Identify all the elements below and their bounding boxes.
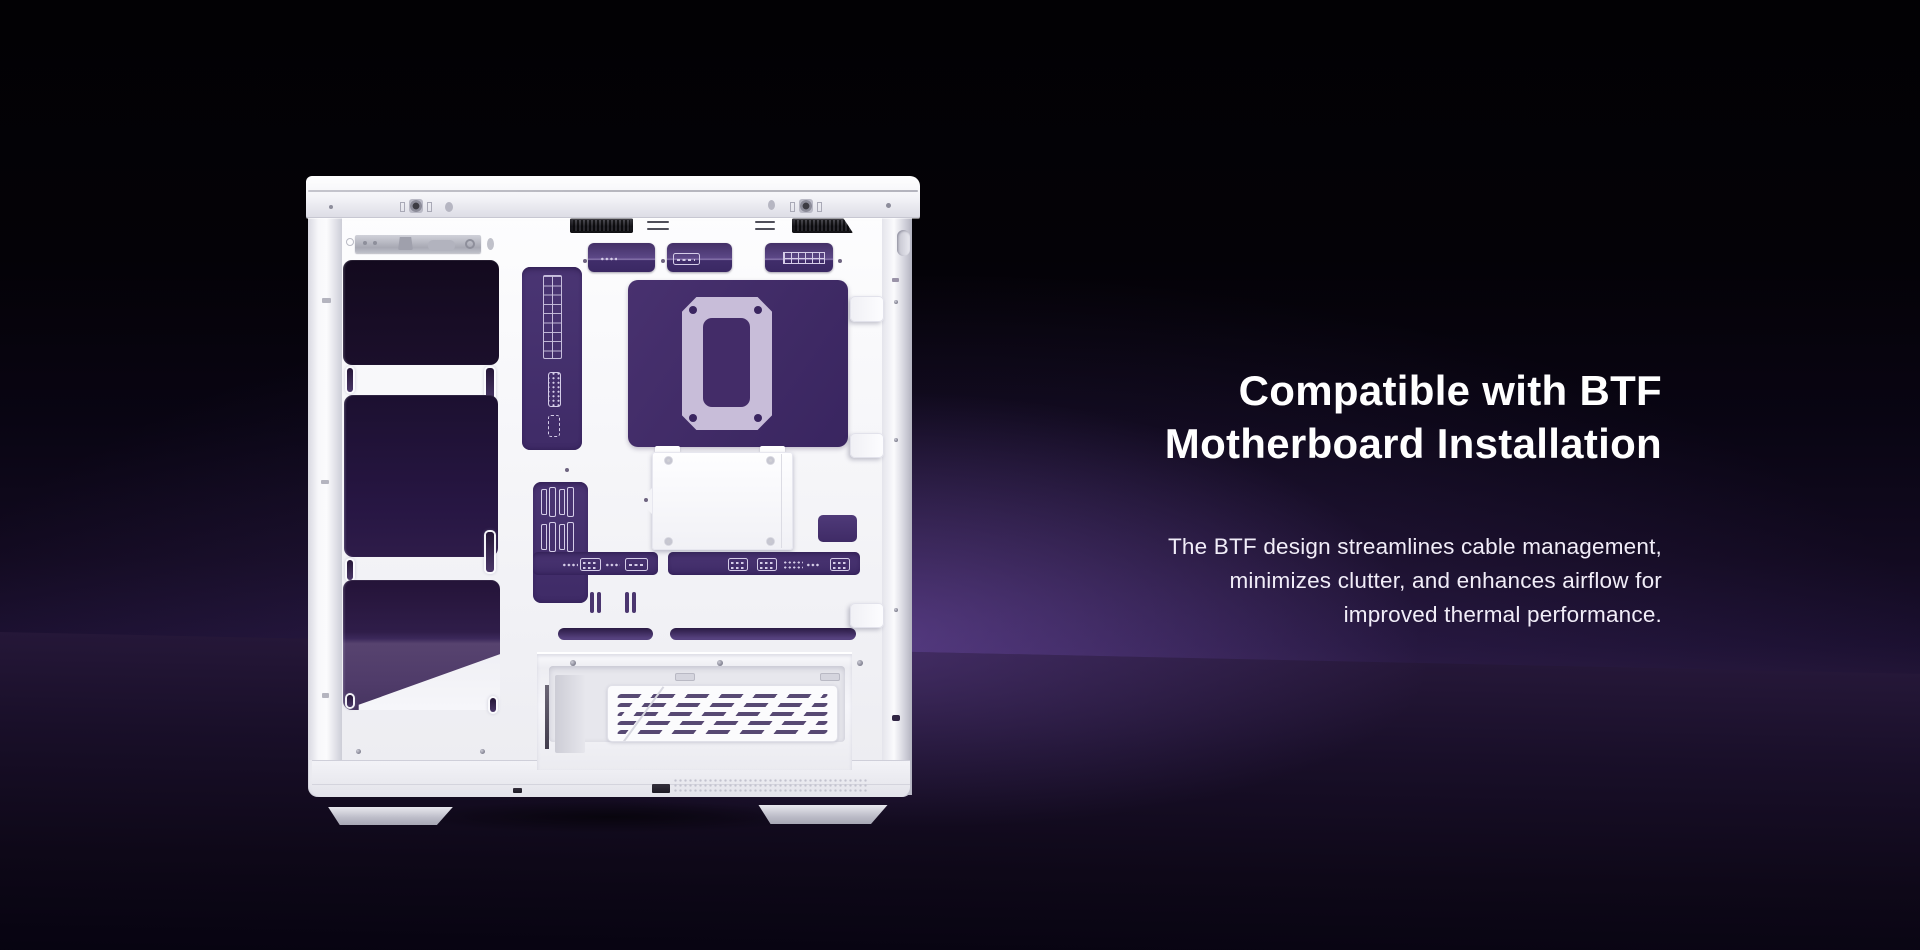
routing-mark [597, 592, 601, 613]
fan-cutout-bottom [343, 580, 500, 710]
body-line-1: The BTF design streamlines cable managem… [942, 530, 1662, 564]
lid-grommet [445, 202, 453, 212]
background-floor-gradient [0, 632, 1920, 950]
strap-slot [347, 368, 353, 392]
motherboard-tray-cutout [628, 280, 848, 447]
pin-dots-icon [600, 257, 617, 261]
connector-box-icon [757, 558, 777, 571]
cable-block-fan-header [588, 243, 655, 272]
fan-bracket-screw-ring [346, 238, 354, 246]
shroud-screw [570, 660, 576, 666]
lid-seam-line [308, 190, 918, 192]
heading-line-2: Motherboard Installation [942, 417, 1662, 470]
fan-cutout-middle [344, 395, 498, 557]
backplate-screw-hole [689, 414, 697, 422]
top-vent-lines [755, 221, 775, 230]
bezel-dash [322, 693, 329, 698]
shroud-side-panel [555, 675, 585, 753]
rear-dash [892, 278, 899, 282]
fan-cutout-top [343, 260, 499, 365]
plate-screw [766, 456, 775, 465]
routing-mark [632, 592, 636, 613]
shroud-screw [857, 660, 863, 666]
shroud-cable-slot-left [558, 628, 653, 640]
thumbscrew-knob [799, 199, 813, 213]
case-foot-right [748, 805, 898, 824]
wall-screw [894, 438, 898, 442]
strap-slot [347, 695, 353, 707]
standoff-dot [583, 259, 587, 263]
pin-dots-icon [562, 563, 578, 567]
strap-slot [490, 698, 496, 712]
section-body: The BTF design streamlines cable managem… [942, 530, 1662, 632]
side-panel-latch [850, 433, 884, 458]
psu-clip [820, 673, 840, 681]
grommet-oval [487, 238, 494, 250]
radiator-mount-bracket [355, 235, 481, 253]
pin-block-icon [548, 372, 561, 407]
standoff-dot [838, 259, 842, 263]
pin-dots-icon [605, 563, 620, 567]
backplate-screw-hole [754, 306, 762, 314]
lid-screw [886, 203, 891, 208]
lid-grommet [768, 200, 775, 210]
header-outline-icon [548, 415, 560, 437]
ssd-mount-plate [652, 452, 793, 550]
body-line-2: minimizes clutter, and enhances airflow … [942, 564, 1662, 598]
case-front-bezel [308, 218, 342, 760]
standoff-dot [644, 498, 648, 502]
sata-connector-icon [559, 487, 575, 518]
strap-slot [486, 532, 494, 572]
sata-connector-icon [541, 487, 557, 518]
lid-screw [329, 205, 333, 209]
shroud-screw [717, 660, 723, 666]
standoff-dot [565, 468, 569, 472]
sata-connector-icon [559, 522, 575, 553]
rear-handle-notch [897, 230, 910, 256]
shroud-cable-slot-right [670, 628, 856, 640]
plate-fold-line [781, 454, 782, 548]
case-right-edge [882, 218, 912, 795]
section-heading: Compatible with BTF Motherboard Installa… [942, 364, 1662, 470]
thumbscrew-bracket [790, 202, 795, 212]
plate-screw [766, 537, 775, 546]
strap-slot [347, 560, 353, 580]
cable-block-usb-header [667, 243, 732, 272]
cable-strip-upper [522, 267, 582, 450]
psu-vent-plate [607, 685, 838, 742]
routing-mark [590, 592, 594, 613]
connector-box-icon [580, 558, 601, 571]
connector-bar-right [668, 552, 860, 575]
cable-block-atx24-header [765, 243, 833, 272]
bezel-dash [321, 480, 329, 484]
pc-case-illustration [306, 174, 920, 825]
wall-screw [894, 300, 898, 304]
thumbscrew-bracket [817, 202, 822, 212]
floor-perforation-mesh [673, 778, 867, 792]
connector-box-icon [830, 558, 850, 571]
copy-block: Compatible with BTF Motherboard Installa… [942, 364, 1662, 632]
hero-section: Compatible with BTF Motherboard Installa… [0, 0, 1920, 950]
heading-line-1: Compatible with BTF [942, 364, 1662, 417]
backplate-screw-hole [689, 306, 697, 314]
connector-box-icon [728, 558, 748, 571]
thumbscrew-knob [409, 199, 423, 213]
side-panel-latch [850, 603, 884, 628]
pin-grid-icon [783, 560, 803, 570]
top-vent-lines [647, 221, 669, 230]
cable-strip-lower [533, 482, 588, 603]
routing-mark [625, 592, 629, 613]
case-top-lid [306, 176, 920, 218]
ladder-grid-icon [543, 275, 562, 359]
body-line-3: improved thermal performance. [942, 598, 1662, 632]
backplate-screw-hole [754, 414, 762, 422]
connector-box-icon [673, 253, 700, 265]
bezel-dash [322, 298, 331, 303]
thumbscrew-bracket [427, 202, 432, 212]
pin-dots-icon [806, 563, 820, 567]
rear-dark-slot [892, 715, 900, 721]
panel-screw [356, 749, 361, 754]
thumbscrew-bracket [400, 202, 405, 212]
standoff-dot [661, 259, 665, 263]
cpu-cutout [703, 318, 750, 407]
connector-box-icon [625, 558, 648, 571]
sata-connector-icon [541, 522, 557, 553]
connector-bar-left [533, 552, 658, 575]
top-cable-mesh [792, 218, 853, 233]
small-cable-cutout [818, 515, 857, 542]
plate-screw [664, 456, 673, 465]
wall-screw [894, 608, 898, 612]
atx-grid-icon [783, 252, 825, 264]
shroud-front-wedge [343, 580, 500, 710]
case-foot-left [318, 807, 463, 825]
plate-screw [664, 537, 673, 546]
front-io-cable-mesh [570, 218, 633, 233]
floor-clip [513, 788, 522, 793]
panel-screw [480, 749, 485, 754]
side-panel-latch [850, 296, 884, 322]
floor-latch [652, 784, 670, 793]
psu-clip [675, 673, 695, 681]
shroud-gap-sliver [545, 685, 549, 749]
